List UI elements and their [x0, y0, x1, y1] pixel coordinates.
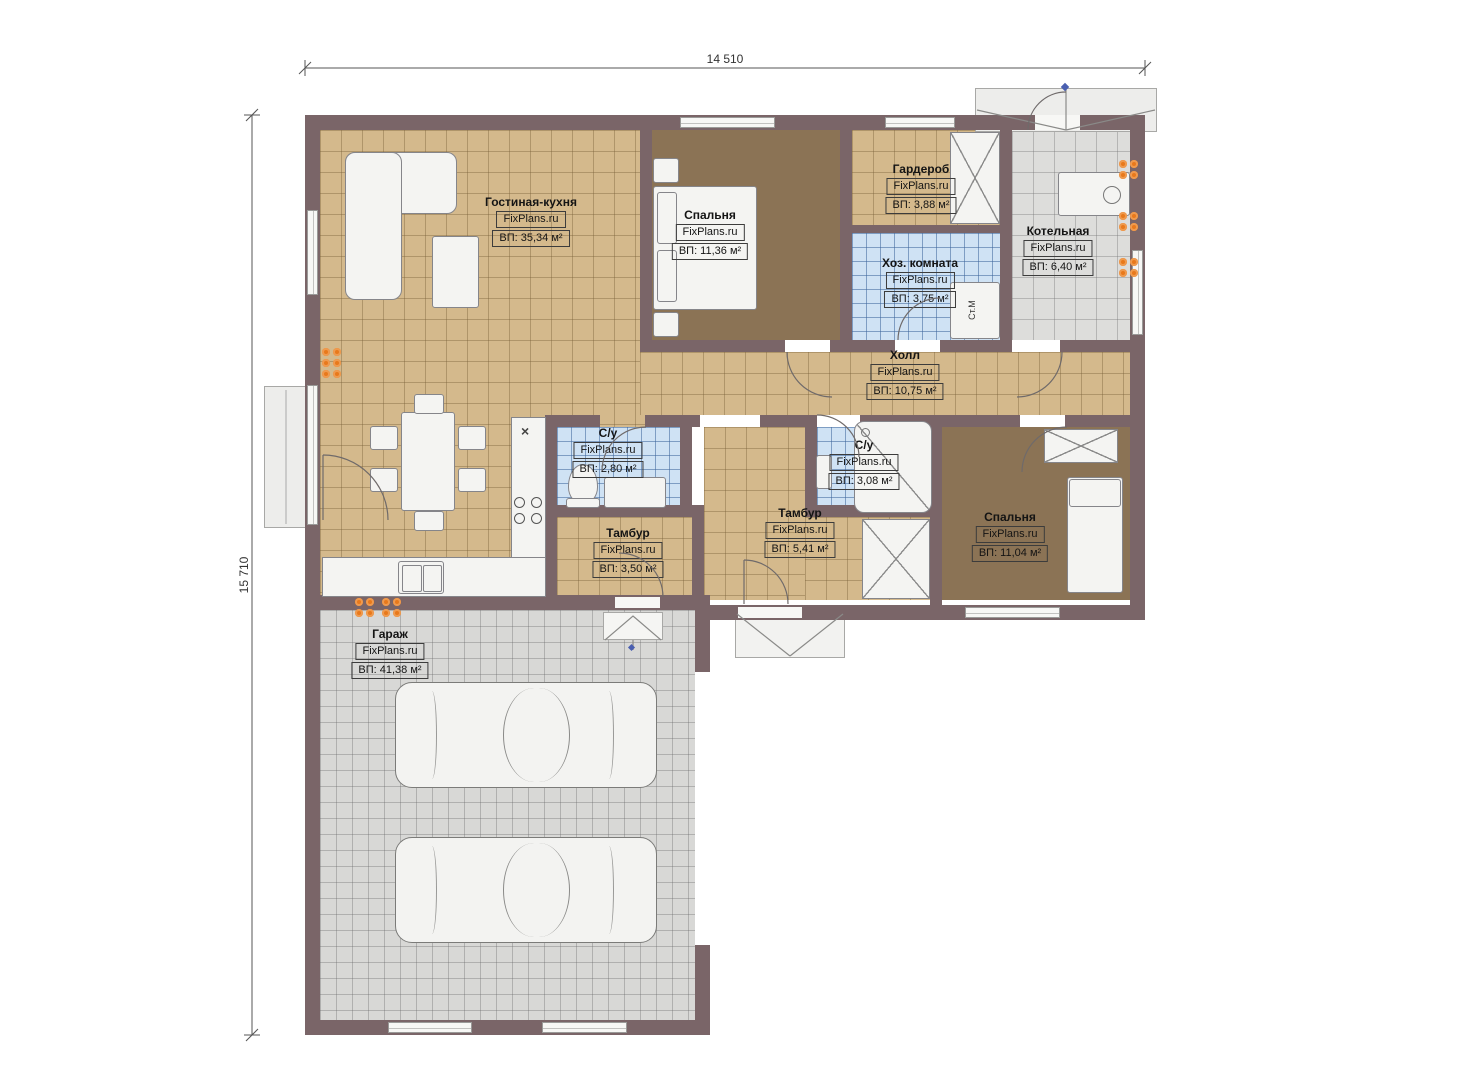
kitchen-sink — [398, 561, 444, 594]
brand-watermark: FixPlans.ru — [886, 178, 955, 195]
room-label-wardrobe: Гардероб FixPlans.ru ВП: 3,88 м² — [885, 162, 956, 214]
chair — [458, 426, 486, 450]
room-label-living-kitchen: Гостиная-кухня FixPlans.ru ВП: 35,34 м² — [485, 195, 577, 247]
wardrobe-closet — [950, 132, 1000, 224]
brand-watermark: FixPlans.ru — [765, 522, 834, 539]
radiator — [1119, 258, 1138, 277]
wall — [305, 610, 320, 1035]
brand-watermark: FixPlans.ru — [870, 364, 939, 381]
wall — [640, 130, 652, 352]
room-area: ВП: 11,04 м² — [972, 545, 1048, 562]
chair — [370, 468, 398, 492]
wall — [695, 610, 710, 672]
car — [395, 682, 657, 788]
room-name: Котельная — [1022, 224, 1093, 238]
brand-watermark: FixPlans.ru — [355, 643, 424, 660]
room-label-garage: Гараж FixPlans.ru ВП: 41,38 м² — [351, 627, 428, 679]
radiator — [322, 348, 341, 378]
toilet-tank — [566, 498, 600, 508]
radiator — [355, 598, 374, 617]
window — [965, 607, 1060, 618]
room-area: ВП: 3,08 м² — [828, 473, 899, 490]
wall — [680, 415, 692, 517]
room-label-wc-1: С/у FixPlans.ru ВП: 2,80 м² — [572, 426, 643, 478]
door-opening — [738, 607, 802, 618]
room-name: Спальня — [672, 208, 748, 222]
room-label-tambour-2: Тамбур FixPlans.ru ВП: 5,41 м² — [764, 506, 835, 558]
room-area: ВП: 3,50 м² — [592, 561, 663, 578]
room-name: Тамбур — [592, 526, 663, 540]
wall — [840, 130, 852, 340]
room-label-bedroom-2: Спальня FixPlans.ru ВП: 11,04 м² — [972, 510, 1048, 562]
room-area: ВП: 3,75 м² — [884, 291, 955, 308]
dining-table — [401, 412, 455, 511]
car — [395, 837, 657, 943]
radiator — [1119, 212, 1138, 231]
room-area: ВП: 6,40 м² — [1022, 259, 1093, 276]
sofa — [345, 152, 402, 300]
room-name: Холл — [866, 348, 943, 362]
window — [680, 117, 775, 128]
room-name: Гардероб — [885, 162, 956, 176]
room-label-tambour-1: Тамбур FixPlans.ru ВП: 3,50 м² — [592, 526, 663, 578]
wall — [1000, 130, 1012, 352]
window — [307, 210, 318, 295]
patio-door — [307, 385, 318, 525]
brand-watermark: FixPlans.ru — [593, 542, 662, 559]
room-area: ВП: 3,88 м² — [885, 197, 956, 214]
dimension-width: 14 510 — [707, 52, 744, 66]
room-label-bedroom-1: Спальня FixPlans.ru ВП: 11,36 м² — [672, 208, 748, 260]
wall — [1065, 415, 1130, 427]
room-name: С/у — [828, 438, 899, 452]
porch-garage-side — [603, 612, 663, 640]
room-label-utility: Хоз. комната FixPlans.ru ВП: 3,75 м² — [882, 256, 958, 308]
door-opening — [1035, 115, 1080, 130]
brand-watermark: FixPlans.ru — [829, 454, 898, 471]
brand-watermark: FixPlans.ru — [496, 211, 565, 228]
brand-watermark: FixPlans.ru — [675, 224, 744, 241]
porch-terrace-left — [264, 386, 308, 528]
room-area: ВП: 2,80 м² — [572, 461, 643, 478]
door-opening — [615, 597, 660, 608]
wall — [305, 1020, 710, 1035]
room-area: ВП: 11,36 м² — [672, 243, 748, 260]
brand-watermark: FixPlans.ru — [1023, 240, 1092, 257]
floor-plan: × Ст.М Гостиная-кухня FixPlans — [0, 0, 1474, 1080]
radiator — [1119, 160, 1138, 179]
nightstand — [653, 158, 679, 183]
room-label-boiler: Котельная FixPlans.ru ВП: 6,40 м² — [1022, 224, 1093, 276]
wall — [695, 945, 710, 1035]
room-name: Тамбур — [764, 506, 835, 520]
room-area: ВП: 5,41 м² — [764, 541, 835, 558]
vanity-sink — [604, 477, 666, 508]
radiator — [382, 598, 401, 617]
dimension-height: 15 710 — [237, 557, 251, 594]
stove — [514, 497, 543, 524]
washing-machine-label: Ст.М — [967, 300, 977, 320]
pillow — [1069, 479, 1121, 507]
chair — [414, 394, 444, 414]
room-area: ВП: 10,75 м² — [866, 383, 943, 400]
chair — [414, 511, 444, 531]
room-name: Гостиная-кухня — [485, 195, 577, 209]
brand-watermark: FixPlans.ru — [885, 272, 954, 289]
garage-door — [542, 1022, 627, 1033]
room-name: С/у — [572, 426, 643, 440]
wardrobe-closet — [1044, 429, 1118, 463]
wall — [305, 115, 320, 620]
chair — [458, 468, 486, 492]
brand-watermark: FixPlans.ru — [975, 526, 1044, 543]
room-area: ВП: 41,38 м² — [351, 662, 428, 679]
chair — [370, 426, 398, 450]
room-name: Хоз. комната — [882, 256, 958, 270]
wall — [1060, 340, 1130, 352]
coffee-table — [432, 236, 479, 308]
room-area: ВП: 35,34 м² — [492, 230, 569, 247]
wall — [1130, 115, 1145, 620]
closet — [862, 519, 930, 599]
window — [885, 117, 955, 128]
room-label-hall: Холл FixPlans.ru ВП: 10,75 м² — [866, 348, 943, 400]
wall — [692, 505, 704, 605]
brand-watermark: FixPlans.ru — [573, 442, 642, 459]
nightstand — [653, 312, 679, 337]
room-name: Спальня — [972, 510, 1048, 524]
room-label-wc-2: С/у FixPlans.ru ВП: 3,08 м² — [828, 438, 899, 490]
room-name: Гараж — [351, 627, 428, 641]
hob-marker: × — [521, 423, 529, 439]
wall — [640, 340, 785, 352]
wall — [852, 225, 1000, 233]
garage-door — [388, 1022, 472, 1033]
